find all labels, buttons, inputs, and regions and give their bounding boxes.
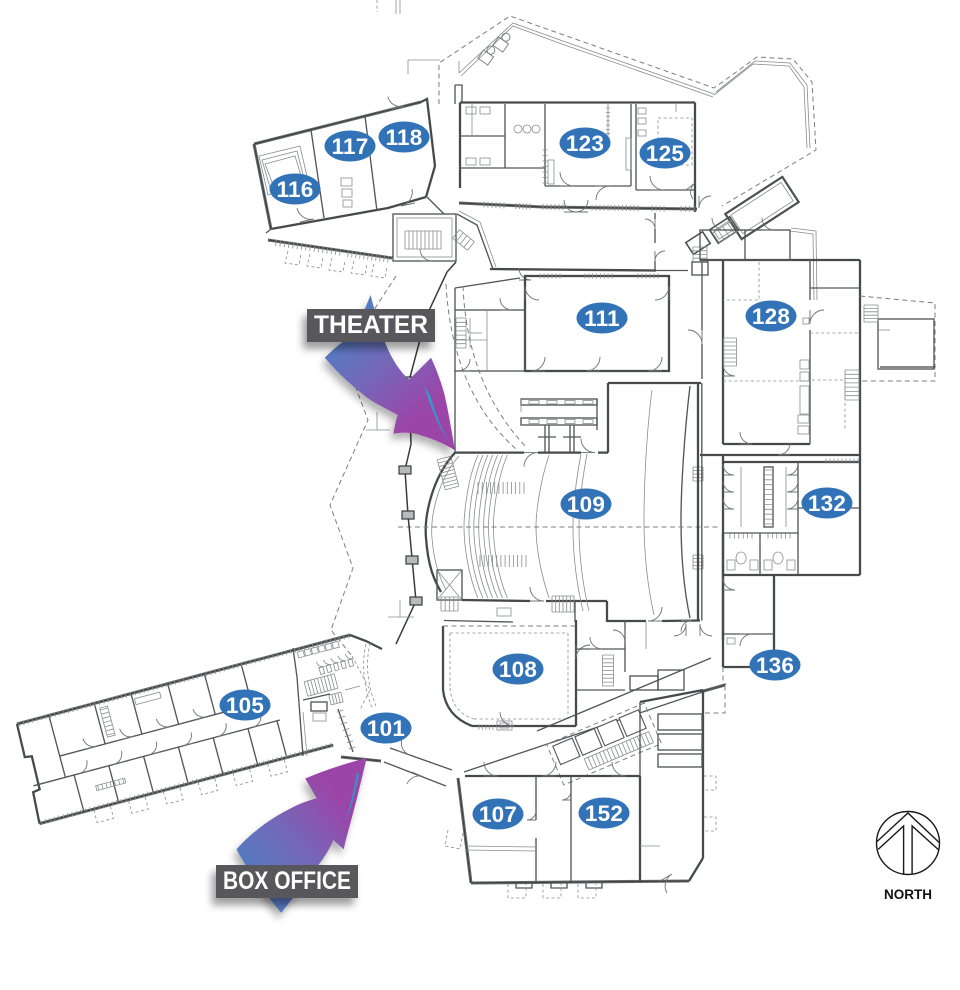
svg-text:BOX OFFICE: BOX OFFICE [223, 867, 351, 895]
svg-text:123: 123 [566, 131, 604, 156]
svg-text:132: 132 [808, 491, 846, 516]
svg-text:117: 117 [332, 134, 369, 159]
svg-text:136: 136 [756, 653, 794, 678]
svg-text:128: 128 [752, 304, 790, 329]
svg-text:101: 101 [367, 716, 405, 741]
svg-text:116: 116 [277, 177, 314, 202]
svg-text:118: 118 [386, 125, 423, 150]
svg-text:109: 109 [567, 492, 605, 517]
svg-text:NORTH: NORTH [884, 887, 932, 902]
svg-text:105: 105 [226, 693, 264, 718]
svg-text:152: 152 [585, 801, 623, 826]
svg-text:107: 107 [479, 802, 517, 827]
svg-text:THEATER: THEATER [314, 311, 428, 339]
svg-text:108: 108 [499, 657, 537, 682]
svg-text:125: 125 [646, 141, 684, 166]
svg-text:111: 111 [584, 306, 620, 331]
